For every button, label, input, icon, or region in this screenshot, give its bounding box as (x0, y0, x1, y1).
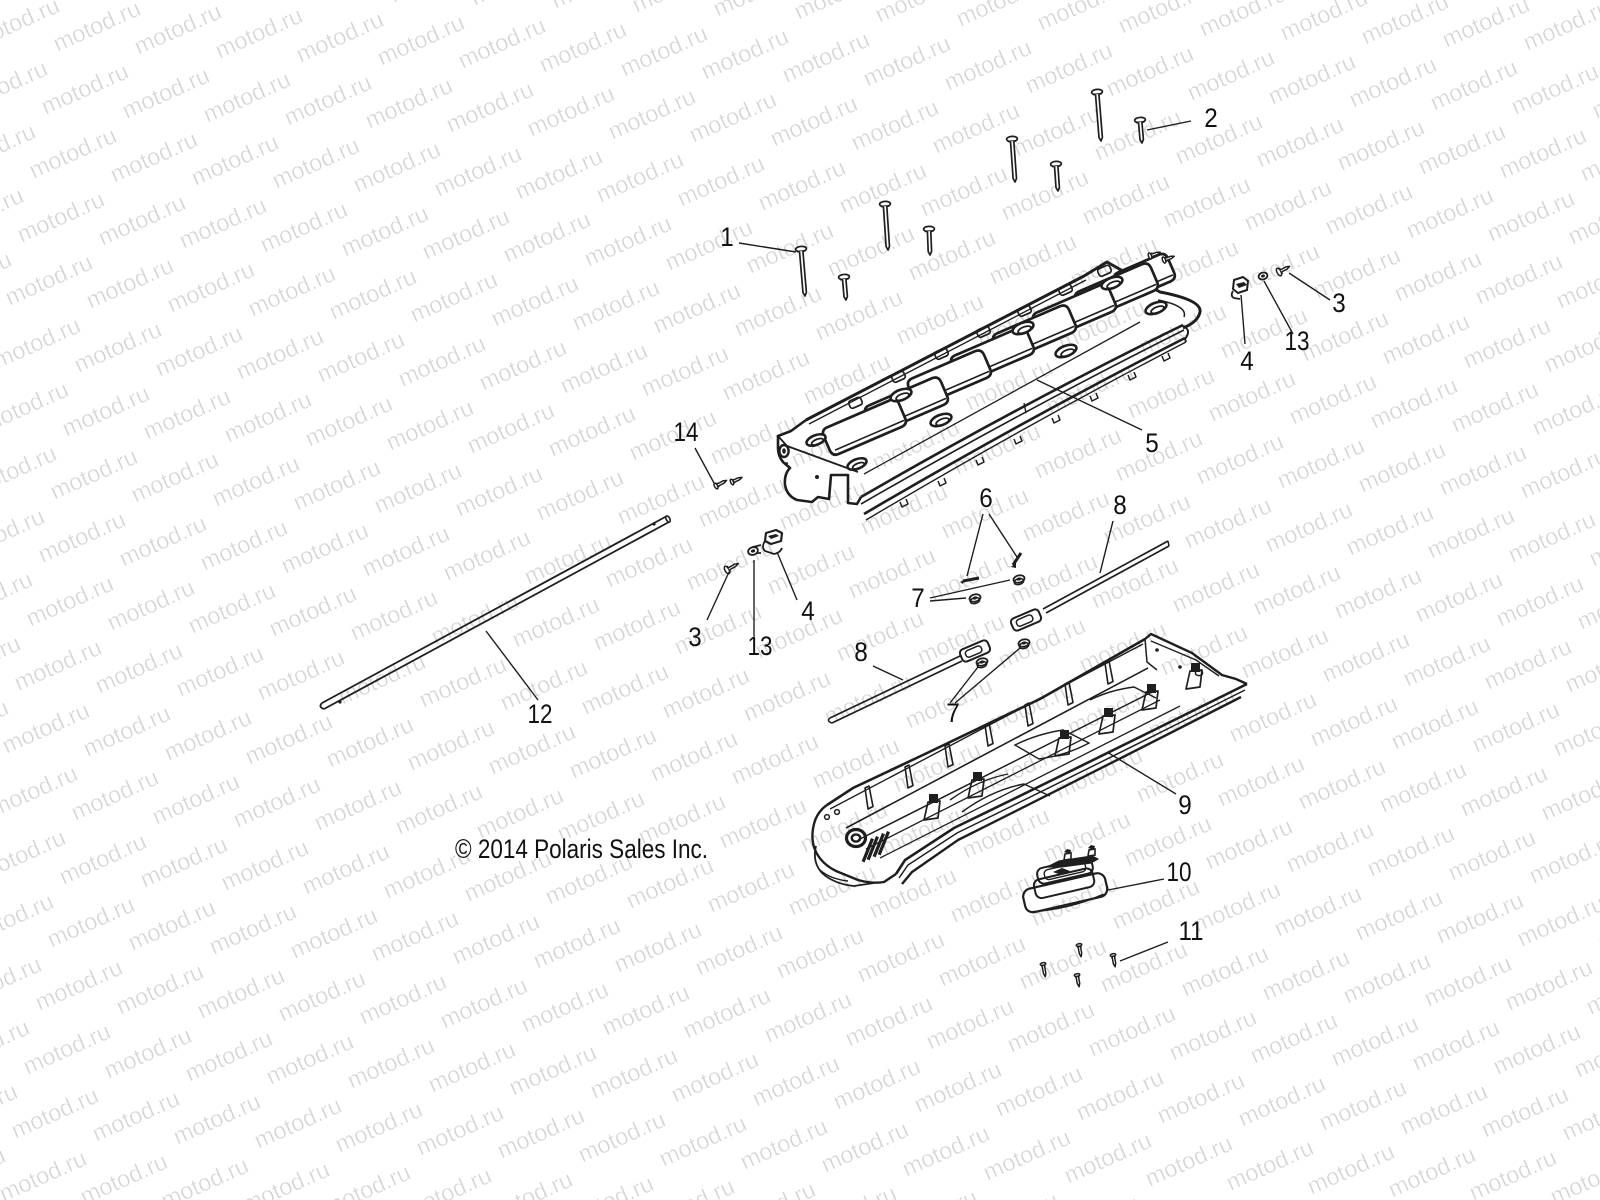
svg-text:8: 8 (1113, 490, 1127, 520)
svg-text:5: 5 (1145, 428, 1159, 458)
svg-text:1: 1 (720, 222, 734, 252)
svg-text:4: 4 (1240, 346, 1254, 376)
svg-text:6: 6 (979, 483, 993, 513)
svg-text:13: 13 (748, 631, 773, 661)
svg-text:14: 14 (674, 417, 699, 447)
svg-text:13: 13 (1285, 326, 1310, 356)
svg-text:3: 3 (688, 622, 702, 652)
svg-text:10: 10 (1167, 857, 1192, 887)
svg-text:9: 9 (1178, 790, 1192, 820)
svg-text:7: 7 (946, 698, 960, 728)
svg-text:11: 11 (1179, 916, 1204, 946)
svg-text:12: 12 (528, 699, 553, 729)
svg-text:4: 4 (801, 596, 815, 626)
svg-text:3: 3 (1332, 288, 1346, 318)
svg-text:© 2014 Polaris Sales Inc.: © 2014 Polaris Sales Inc. (455, 834, 708, 864)
svg-text:7: 7 (911, 583, 925, 613)
svg-text:2: 2 (1204, 103, 1218, 133)
svg-text:8: 8 (854, 637, 868, 667)
